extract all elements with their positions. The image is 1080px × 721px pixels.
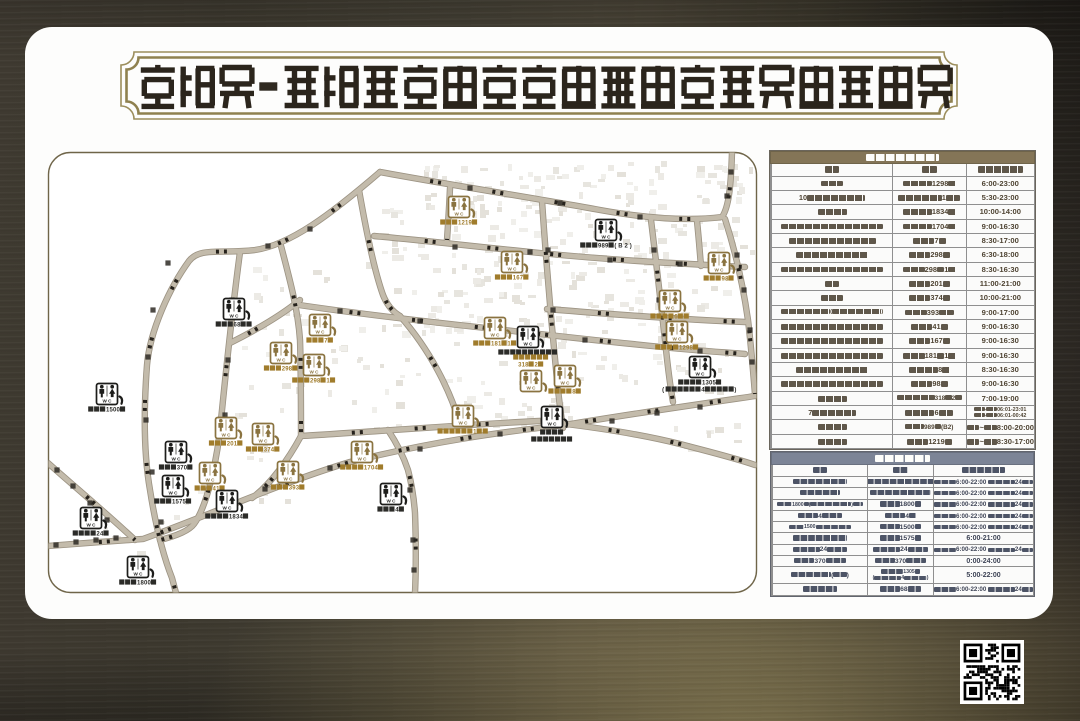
svg-text:W C: W C — [358, 457, 368, 462]
svg-text:W C: W C — [172, 457, 182, 462]
svg-text:370: 370 — [177, 465, 188, 471]
svg-text:W C: W C — [316, 330, 326, 335]
svg-text:(: ( — [662, 387, 664, 393]
svg-text:W C: W C — [715, 268, 725, 273]
svg-text:1219: 1219 — [458, 220, 473, 226]
svg-text:W C: W C — [223, 506, 233, 511]
svg-text:W C: W C — [527, 386, 537, 391]
svg-text:24: 24 — [96, 531, 104, 537]
svg-text:W C: W C — [222, 433, 232, 438]
svg-text:1800: 1800 — [137, 580, 152, 586]
svg-text:1298: 1298 — [679, 345, 694, 351]
svg-text:W C: W C — [459, 421, 469, 426]
svg-text:98: 98 — [722, 276, 730, 282]
svg-text:W C: W C — [508, 267, 518, 272]
svg-text:): ) — [734, 387, 736, 393]
svg-text:W C: W C — [696, 372, 706, 377]
svg-text:W C: W C — [548, 422, 558, 427]
svg-text:318: 318 — [518, 362, 529, 368]
svg-text:W C: W C — [169, 491, 179, 496]
svg-text:W C: W C — [387, 499, 397, 504]
svg-text:W C: W C — [491, 333, 501, 338]
svg-text:W C: W C — [259, 439, 269, 444]
svg-text:167: 167 — [513, 275, 524, 281]
svg-text:1834: 1834 — [229, 514, 244, 520]
svg-text:181: 181 — [491, 341, 502, 347]
svg-text:W C: W C — [284, 477, 294, 482]
svg-text:1575: 1575 — [172, 499, 187, 505]
svg-text:298: 298 — [310, 378, 321, 384]
svg-text:W C: W C — [673, 337, 683, 342]
svg-text:W C: W C — [455, 212, 465, 217]
svg-text:W C: W C — [134, 572, 144, 577]
svg-text:68: 68 — [234, 322, 242, 328]
svg-text:W C: W C — [277, 358, 287, 363]
svg-text:298: 298 — [282, 366, 293, 372]
svg-text:989: 989 — [598, 243, 609, 249]
svg-text:W C: W C — [524, 342, 534, 347]
svg-text:W C: W C — [103, 399, 113, 404]
svg-text:1500: 1500 — [106, 407, 121, 413]
svg-text:W C: W C — [561, 381, 571, 386]
svg-text:1704: 1704 — [364, 465, 379, 471]
svg-text:W C: W C — [206, 478, 216, 483]
svg-text:374: 374 — [264, 447, 275, 453]
svg-text:W C: W C — [230, 314, 240, 319]
svg-text:1305: 1305 — [702, 380, 717, 386]
svg-text:W C: W C — [87, 523, 97, 528]
svg-text:393: 393 — [289, 485, 300, 491]
svg-text:W C: W C — [310, 370, 320, 375]
svg-text:201: 201 — [227, 441, 238, 447]
svg-text:W C: W C — [602, 235, 612, 240]
svg-text:W C: W C — [666, 306, 676, 311]
